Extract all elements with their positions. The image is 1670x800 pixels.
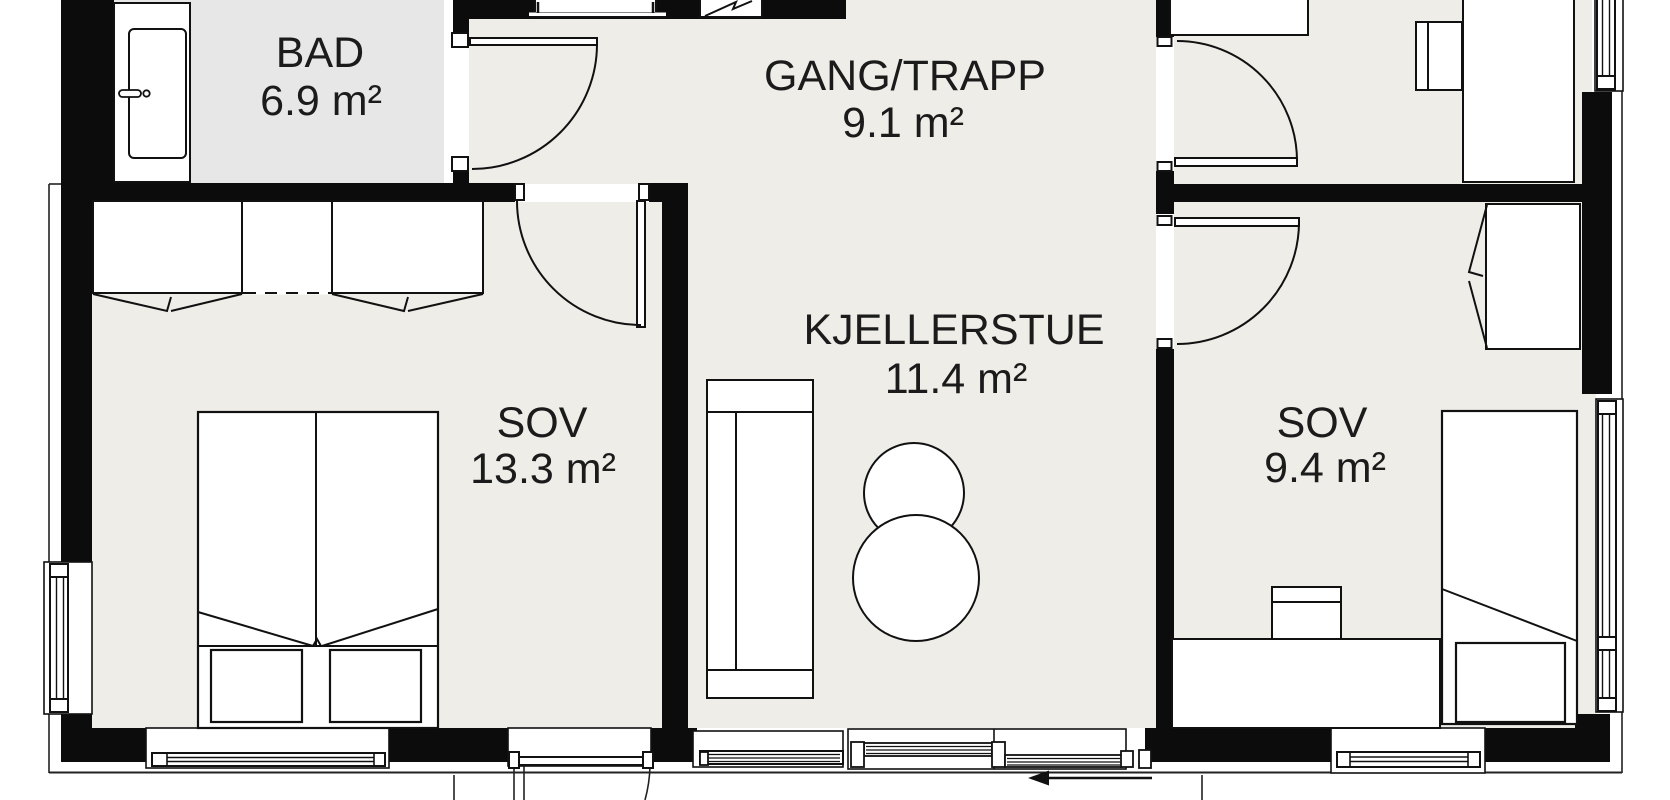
svg-text:SOV: SOV — [497, 399, 588, 447]
svg-text:SOV: SOV — [1277, 399, 1368, 447]
svg-text:KJELLERSTUE: KJELLERSTUE — [803, 306, 1104, 354]
svg-text:GANG/TRAPP: GANG/TRAPP — [764, 52, 1046, 100]
svg-text:11.4 m²: 11.4 m² — [885, 355, 1028, 403]
svg-text:13.3 m²: 13.3 m² — [470, 445, 616, 493]
svg-text:9.4 m²: 9.4 m² — [1264, 444, 1386, 492]
svg-text:9.1 m²: 9.1 m² — [842, 99, 964, 147]
svg-text:6.9 m²: 6.9 m² — [260, 77, 382, 125]
svg-text:BAD: BAD — [276, 29, 364, 77]
